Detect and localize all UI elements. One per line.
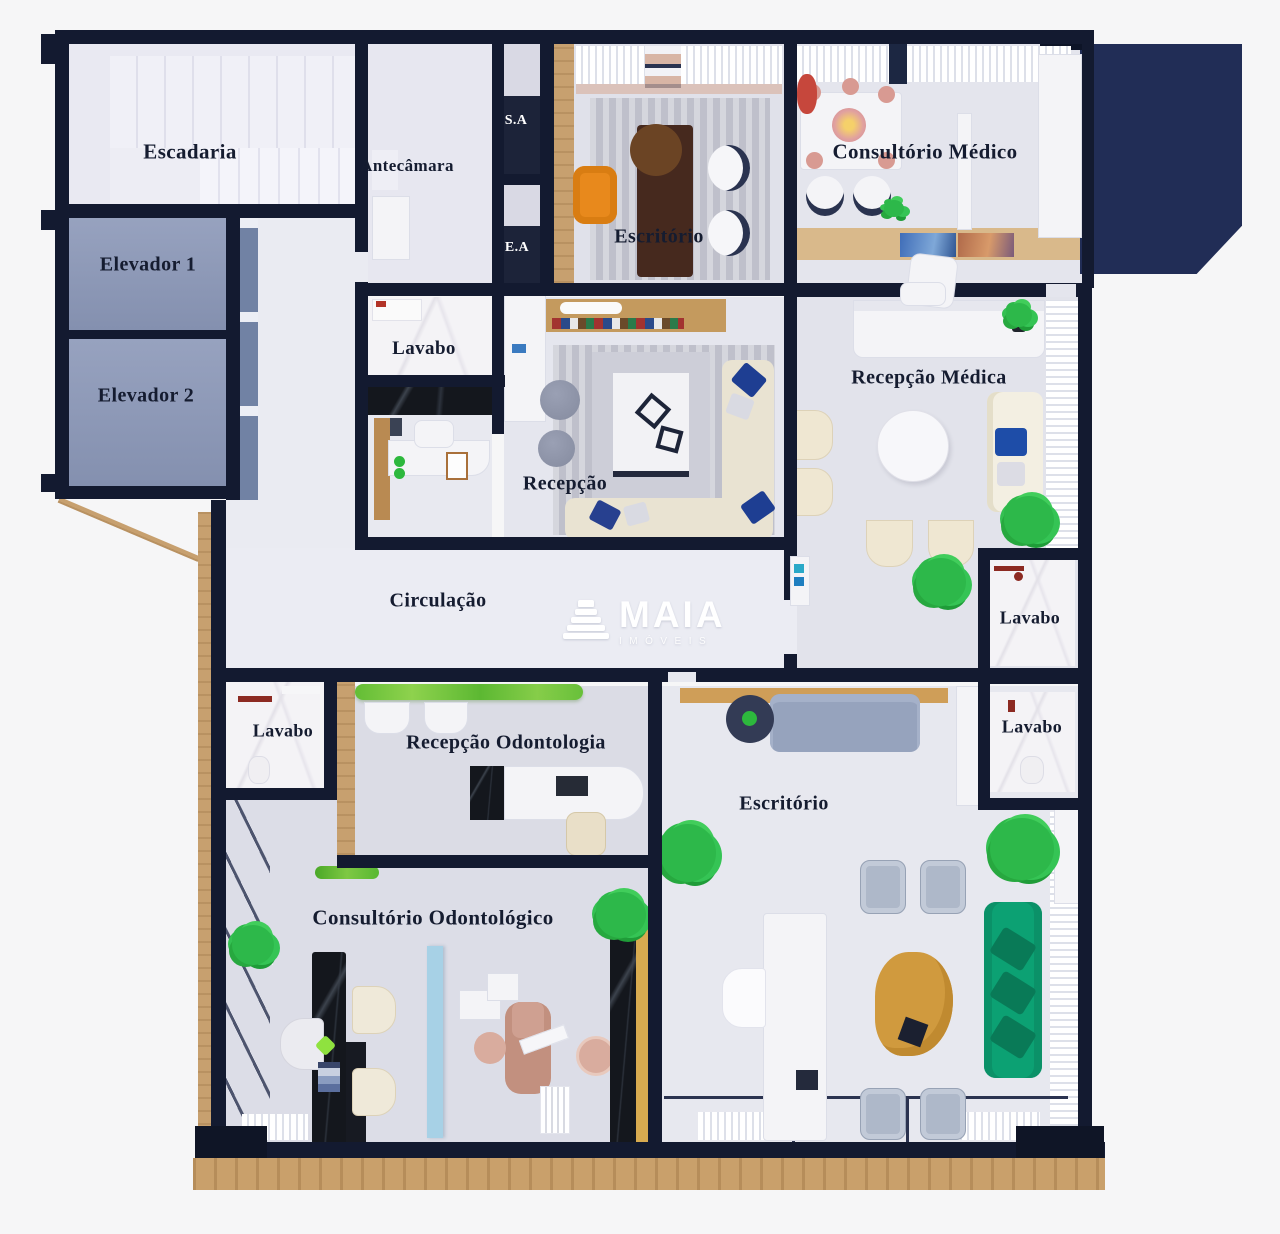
ro-office-chair	[566, 812, 606, 856]
corner-block-bl	[195, 1126, 267, 1158]
corner-block-br	[1016, 1126, 1104, 1158]
watermark-logo: MAIA IMÓVEIS	[563, 597, 726, 647]
copa-chair	[414, 420, 454, 448]
wall-bottom-outer	[195, 1142, 1105, 1158]
ei-chair-top-1	[860, 860, 906, 914]
wall-cm-right	[1082, 30, 1094, 288]
room-label-elevador-1: Elevador 1	[100, 254, 196, 277]
room-label-circulacao: Circulação	[390, 590, 487, 613]
floor-grid-tick-2	[906, 1098, 909, 1142]
wall-recepcao-bottom	[355, 537, 797, 550]
escadaria-wall-panels	[110, 56, 356, 148]
recepcao-books	[552, 318, 684, 329]
escritorio-sup-wood-strip	[554, 44, 574, 283]
lavabo-odonto-toilet	[248, 756, 270, 784]
room-label-lavabo-recepcao: Lavabo	[392, 338, 456, 360]
co-stool-1	[474, 1032, 506, 1064]
door-escritorio-inf	[668, 672, 696, 682]
rm-water-panel-screen-2	[794, 577, 804, 586]
ei-plant-right	[990, 818, 1054, 880]
wall-escadaria-bottom	[55, 204, 368, 218]
lavabo-dir-sup-rail	[994, 566, 1024, 571]
room-label-recepcao: Recepção	[523, 473, 607, 496]
rm-chair-bottom-1	[866, 520, 913, 567]
copa-bottle-2	[394, 468, 405, 479]
co-right-cabinet	[610, 928, 636, 1142]
cm-artwork-orange	[958, 233, 1014, 257]
escritorio-sup-chair-1	[708, 145, 750, 191]
ei-gray-sofa	[770, 694, 920, 752]
wall-shaft-divider	[496, 174, 544, 185]
ei-chair-bottom-2	[920, 1088, 966, 1140]
wall-lavabo-odonto-bottom	[211, 788, 337, 800]
ei-shelf-right	[1054, 804, 1080, 904]
room-label-escadaria: Escadaria	[143, 140, 236, 165]
co-counter-v	[487, 973, 519, 1001]
elevator-doors	[240, 218, 258, 500]
cm-pink-chair-2	[842, 78, 859, 95]
co-cream-chair-1	[352, 986, 396, 1034]
wall-left-lower	[211, 500, 226, 1156]
room-label-consultorio-odontologico: Consultório Odontológico	[312, 906, 553, 931]
door-antecamara	[355, 252, 368, 282]
escritorio-sup-chair-2	[708, 210, 750, 256]
rm-desk-plant	[1006, 303, 1032, 327]
wall-antecamara-right	[492, 30, 504, 284]
wall-stub-3	[41, 474, 55, 492]
cm-window-gap	[889, 44, 907, 84]
wall-elevator-divider	[55, 330, 226, 339]
room-label-elevador-2: Elevador 2	[98, 385, 194, 408]
floor-plan: Escadaria Elevador 1 Elevador 2 Antecâma…	[0, 0, 1280, 1234]
ei-round-table-plant	[742, 711, 757, 726]
room-label-recepcao-medica: Recepção Médica	[851, 367, 1006, 390]
escritorio-sup-rose-band	[576, 84, 782, 94]
cm-wardrobe	[1038, 54, 1082, 238]
co-equipment-column	[540, 1086, 570, 1134]
wall-top	[55, 30, 1094, 44]
ei-plant-left	[660, 824, 716, 882]
co-right-wood	[636, 928, 648, 1142]
ro-monitor	[556, 776, 588, 796]
watermark-subtitle: IMÓVEIS	[619, 636, 726, 647]
watermark-text: MAIA IMÓVEIS	[619, 597, 726, 647]
room-label-escritorio-inf: Escritório	[739, 793, 829, 816]
rm-water-panel-screen-1	[794, 564, 804, 573]
ei-chair-bottom-1	[860, 1088, 906, 1140]
room-label-escritorio-sup: Escritório	[614, 226, 704, 249]
room-label-lavabo-odonto: Lavabo	[253, 721, 313, 742]
navy-roof-mass	[1080, 44, 1242, 274]
wall-lavabo-recepcao-bottom	[355, 375, 505, 387]
room-label-sa: S.A	[505, 113, 528, 129]
room-label-lavabo-dir-sup: Lavabo	[1000, 608, 1060, 629]
wall-row-antecamara-bottom	[355, 283, 554, 296]
room-label-antecamara: Antecâmara	[360, 156, 454, 176]
maia-pyramid-icon	[563, 597, 609, 639]
watermark-brand: MAIA	[619, 597, 726, 633]
wall-elevator-bottom	[55, 486, 226, 499]
ei-desk-chair	[722, 968, 766, 1028]
rm-plant-right	[1004, 496, 1054, 544]
wall-shaft-right	[540, 30, 554, 294]
ro-chair-2	[424, 702, 468, 734]
co-plant-tl	[232, 925, 274, 965]
lavabo-odonto-door	[282, 686, 320, 694]
ei-desk-device	[796, 1070, 818, 1090]
wall-lavabo-dir-bottom	[978, 798, 1090, 810]
diagonal-wood-edge	[58, 497, 200, 562]
wall-spine-lower	[648, 668, 662, 1142]
ei-chair-top-2	[920, 860, 966, 914]
room-label-lavabo-dir-inf: Lavabo	[1002, 717, 1062, 738]
cm-centerpiece	[832, 108, 866, 142]
wall-elevator-right	[226, 204, 240, 500]
cm-chair-1	[806, 176, 844, 216]
room-label-recepcao-odontologia: Recepção Odontologia	[406, 732, 606, 755]
copa-counter	[368, 387, 492, 415]
lavabo-recepcao-red-tap	[376, 301, 386, 307]
room-label-ea: E.A	[505, 240, 529, 256]
cm-pink-chair-3	[878, 86, 895, 103]
rm-sofa-pillow-navy	[995, 428, 1027, 456]
room-label-consultorio-medico: Consultório Médico	[832, 140, 1017, 165]
recepcao-odonto-wood-strip	[337, 682, 355, 855]
door-corridor-rm	[784, 600, 797, 654]
cm-partition	[957, 113, 972, 230]
wall-lavabo-dir-mid	[978, 672, 1090, 684]
door-cm-right	[1046, 284, 1076, 297]
wall-lavabo-odonto-right	[324, 668, 337, 800]
copa-bottle-1	[394, 456, 405, 467]
wall-escritorio-sup-bottom	[554, 283, 797, 296]
wall-stub-1	[41, 34, 55, 64]
wall-left-upper	[55, 30, 69, 490]
wall-copa-right	[492, 284, 504, 434]
wall-right-main	[1078, 288, 1092, 1156]
wall-lavabo-dir-top	[978, 548, 1090, 560]
antecamara-bench	[372, 196, 410, 260]
shaft-sa-dark	[504, 96, 540, 174]
elevator-2-cab	[69, 339, 226, 486]
co-cream-chair-2	[352, 1068, 396, 1116]
left-wood-border	[198, 512, 211, 1190]
co-plant-tr	[596, 892, 646, 938]
co-desk-folders	[318, 1062, 340, 1092]
rm-chair-left-2	[795, 468, 833, 516]
lavabo-dir-sup-dot	[1014, 572, 1023, 581]
bottom-wood-border	[193, 1158, 1105, 1190]
lavabo-odonto-rail	[238, 696, 272, 702]
recepcao-pouf-1	[540, 380, 580, 420]
rm-plant-lower	[916, 558, 966, 606]
cm-flowers	[797, 74, 817, 114]
rm-desk-chair	[900, 282, 946, 306]
lavabo-dir-inf-toilet	[1020, 756, 1044, 784]
cm-pink-chair-4	[806, 152, 823, 169]
recepcao-cabinet-logo	[512, 344, 526, 353]
rm-round-table	[877, 410, 949, 482]
ei-desk	[763, 913, 827, 1141]
ro-desk-marble	[470, 766, 504, 820]
lavabo-dir-inf-mark	[1008, 700, 1015, 712]
ro-chair-1	[364, 702, 410, 734]
wall-stub-2	[41, 210, 55, 230]
co-blue-partition	[427, 946, 443, 1138]
rm-sofa-pillow-pattern	[997, 462, 1025, 486]
recepcao-shelf-decor	[560, 302, 622, 314]
recepcao-pouf-2	[538, 430, 575, 467]
ro-hedge	[355, 684, 583, 700]
wall-recepcao-odonto-bottom	[337, 855, 662, 868]
cm-plant	[884, 200, 904, 217]
escritorio-sup-orange-armchair	[573, 166, 617, 224]
escritorio-sup-window-band	[645, 46, 681, 88]
rm-chair-left-1	[795, 410, 833, 460]
copa-card	[446, 452, 468, 480]
escritorio-sup-round-chair	[630, 124, 682, 176]
